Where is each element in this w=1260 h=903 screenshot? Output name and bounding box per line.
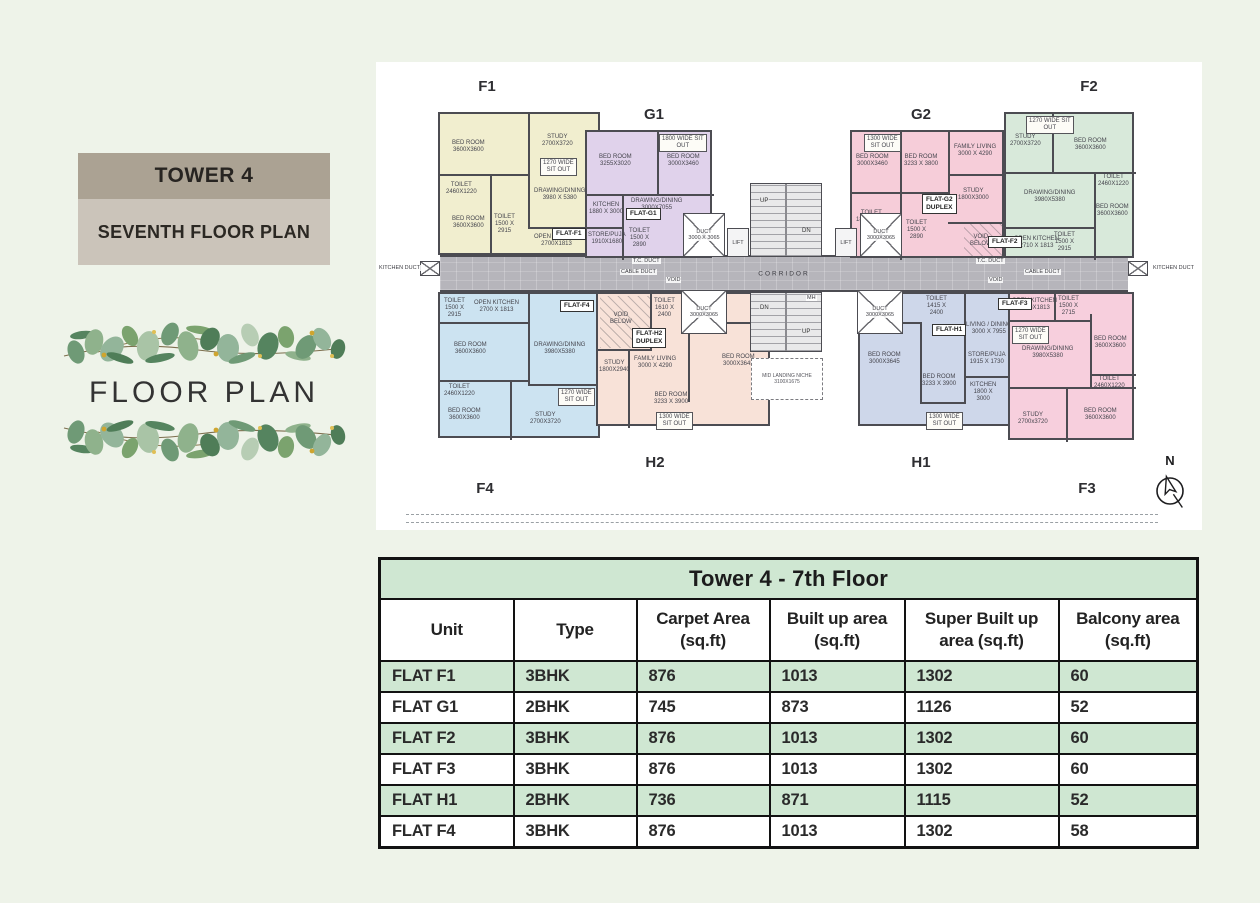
- room-label: STUDY 2700x3720: [1018, 412, 1048, 426]
- unit-label-h1: H1: [911, 454, 930, 471]
- table-cell: FLAT F1: [380, 661, 514, 692]
- room-label: BED ROOM 3600X3600: [1096, 204, 1129, 218]
- interior-wall: [440, 322, 530, 324]
- room-label: STUDY 1800X2940: [599, 360, 630, 374]
- table-cell: 3BHK: [514, 754, 637, 785]
- north-compass: N: [1148, 454, 1192, 518]
- room-label: BED ROOM 3000X3460: [667, 154, 700, 168]
- duct-shaft: [420, 261, 440, 276]
- plan-annotation: VOID: [988, 277, 1003, 283]
- floor-plan-unit-f3: OPEN KITCHEN 2700X1813TOILET 1500 X 2715…: [1008, 292, 1134, 440]
- room-label: TOILET 2460X1220: [444, 384, 475, 398]
- table-cell: 1302: [905, 723, 1059, 754]
- room-label: TOILET 1500 X 2915: [444, 298, 465, 320]
- area-table: Tower 4 - 7th Floor Unit Type Carpet Are…: [378, 557, 1199, 849]
- room-label: KITCHEN 1800 X 3000: [970, 382, 996, 404]
- unit-label-f2: F2: [1080, 78, 1098, 95]
- table-cell: FLAT F4: [380, 816, 514, 848]
- interior-wall: [528, 384, 602, 386]
- table-cell: 1302: [905, 754, 1059, 785]
- duct-shaft: [1128, 261, 1148, 276]
- stair-direction-label: UP: [801, 329, 811, 335]
- room-label: 1270 WIDE SIT OUT: [540, 158, 577, 176]
- room-label: BED ROOM 3000X3645: [722, 354, 755, 368]
- col-header-super-builtup-area: Super Built up area (sq.ft): [905, 599, 1059, 661]
- room-label: DRAWING/DINING 3980X5380: [1024, 190, 1075, 204]
- table-cell: FLAT F2: [380, 723, 514, 754]
- boundary-dashline: [406, 514, 1158, 515]
- interior-wall: [964, 294, 966, 404]
- interior-wall: [528, 294, 530, 384]
- room-label: VOID BELOW: [610, 312, 632, 326]
- plan-annotation: T.C. DUCT: [632, 258, 661, 264]
- table-cell: 876: [637, 661, 770, 692]
- interior-wall: [528, 176, 530, 227]
- plan-annotation: MH: [806, 295, 817, 301]
- duct-shaft: DUCT 3000 X 3065: [683, 213, 725, 257]
- interior-wall: [1010, 320, 1090, 322]
- floor-plan-unit-f2: STUDY 2700X3720BED ROOM 3600X3600TOILET …: [1004, 112, 1134, 258]
- table-cell: 1126: [905, 692, 1059, 723]
- table-cell: 876: [637, 816, 770, 848]
- interior-wall: [440, 380, 530, 382]
- plan-annotation: CABLE DUCT: [620, 269, 657, 275]
- room-label: BED ROOM 3600X3600: [1084, 408, 1117, 422]
- room-label: BED ROOM 3600X3600: [1094, 336, 1127, 350]
- page: TOWER 4 SEVENTH FLOOR PLAN: [0, 0, 1260, 903]
- room-label: 1300 WIDE SIT OUT: [926, 412, 963, 430]
- room-label: 1270 WIDE SIT OUT: [1026, 116, 1074, 134]
- col-header-builtup-area: Built up area (sq.ft): [770, 599, 905, 661]
- floor-plan-decor: FLOOR PLAN: [58, 322, 350, 462]
- table-cell: FLAT H1: [380, 785, 514, 816]
- room-label: 1270 WIDE SIT OUT: [558, 388, 595, 406]
- room-label: TOILET 1415 X 2400: [926, 296, 947, 318]
- room-label: STUDY 2700X3720: [1010, 134, 1041, 148]
- room-label: BED ROOM 3600X3600: [454, 342, 487, 356]
- flat-tag-h2: FLAT-H2 DUPLEX: [632, 328, 666, 348]
- table-cell: 60: [1059, 723, 1198, 754]
- table-cell: 52: [1059, 692, 1198, 723]
- room-label: 1300 WIDE SIT OUT: [864, 134, 901, 152]
- room-label: STUDY 1800X3000: [958, 188, 989, 202]
- table-cell: 1302: [905, 816, 1059, 848]
- room-label: BED ROOM 3000X3645: [868, 352, 901, 366]
- flat-tag-h1: FLAT-H1: [932, 324, 966, 336]
- unit-label-f1: F1: [478, 78, 496, 95]
- duct-shaft: DUCT 3000X3065: [857, 290, 903, 334]
- interior-wall: [1090, 314, 1092, 389]
- room-label: TOILET 1500 X 2890: [906, 220, 927, 242]
- table-row: FLAT F23BHK8761013130260: [380, 723, 1198, 754]
- room-label: TOILET 1500 X 2915: [1054, 232, 1075, 254]
- table-cell: 60: [1059, 661, 1198, 692]
- table-cell: 736: [637, 785, 770, 816]
- col-header-type: Type: [514, 599, 637, 661]
- room-label: DRAWING/DINING 3980 X 5380: [534, 188, 585, 202]
- plan-annotation: T.C. DUCT: [976, 258, 1005, 264]
- plan-annotation: CABLE DUCT: [1024, 269, 1061, 275]
- unit-label-h2: H2: [645, 454, 664, 471]
- landing-niche: MID LANDING NICHE 3100X1675: [751, 358, 823, 400]
- plan-annotation: KITCHEN DUCT: [1152, 265, 1195, 271]
- floor-plan-unit-f4: OPEN KITCHEN 2700 X 1813TOILET 1500 X 29…: [438, 292, 600, 438]
- room-label: 1300 WIDE SIT OUT: [656, 412, 693, 430]
- room-label: BED ROOM 3233 X 3900: [922, 374, 956, 388]
- table-row: FLAT H12BHK736871111552: [380, 785, 1198, 816]
- interior-wall: [688, 322, 690, 402]
- table-cell: FLAT G1: [380, 692, 514, 723]
- floor-plan-panel: N CORRIDORBED ROOM 3600X3600STUDY 2700X3…: [376, 62, 1202, 530]
- stair-direction-label: DN: [759, 305, 770, 311]
- room-label: BED ROOM 3600X3600: [448, 408, 481, 422]
- table-row: FLAT F43BHK8761013130258: [380, 816, 1198, 848]
- room-label: BED ROOM 3600X3600: [452, 140, 485, 154]
- room-label: TOILET 1500 X 2715: [1058, 296, 1079, 318]
- leaf-garland-bottom-icon: [58, 414, 350, 462]
- interior-wall: [948, 132, 950, 194]
- table-cell: 876: [637, 754, 770, 785]
- table-cell: 3BHK: [514, 816, 637, 848]
- room-label: STORE/PUJA 1910X1680: [588, 232, 626, 246]
- room-label: BED ROOM 3600X3600: [452, 216, 485, 230]
- room-label: TOILET 1500 X 2890: [629, 228, 650, 250]
- flat-tag-g1: FLAT-G1: [626, 208, 661, 220]
- table-cell: 1302: [905, 661, 1059, 692]
- table-cell: 745: [637, 692, 770, 723]
- table-cell: 873: [770, 692, 905, 723]
- table-cell: 52: [1059, 785, 1198, 816]
- room-label: STUDY 2700X3720: [530, 412, 561, 426]
- interior-wall: [490, 176, 492, 257]
- col-header-carpet-area: Carpet Area (sq.ft): [637, 599, 770, 661]
- interior-wall: [920, 402, 964, 404]
- room-label: BED ROOM 3600X3600: [1074, 138, 1107, 152]
- room-label: TOILET 2460X1220: [446, 182, 477, 196]
- plan-annotation: VOID: [666, 277, 681, 283]
- interior-wall: [1006, 227, 1094, 229]
- flat-tag-g2: FLAT-G2 DUPLEX: [922, 194, 957, 214]
- floor-subtitle: SEVENTH FLOOR PLAN: [78, 199, 330, 265]
- floor-plan-canvas: N CORRIDORBED ROOM 3600X3600STUDY 2700X3…: [376, 62, 1202, 530]
- stair-direction-label: UP: [759, 198, 769, 204]
- table-row: FLAT G12BHK745873112652: [380, 692, 1198, 723]
- table-cell: 3BHK: [514, 723, 637, 754]
- room-label: DRAWING/DINING 3980X5380: [534, 342, 585, 356]
- interior-wall: [440, 174, 530, 176]
- table-row: FLAT F33BHK8761013130260: [380, 754, 1198, 785]
- table-row: FLAT F13BHK8761013130260: [380, 661, 1198, 692]
- room-label: 1270 WIDE SIT OUT: [1012, 326, 1049, 344]
- interior-wall: [510, 382, 512, 440]
- table-cell: 1115: [905, 785, 1059, 816]
- compass-n-label: N: [1148, 454, 1192, 467]
- unit-label-g1: G1: [644, 106, 664, 123]
- lift: LIFT: [727, 228, 749, 257]
- room-label: BED ROOM 3233 X 3800: [904, 154, 938, 168]
- table-header-row: Unit Type Carpet Area (sq.ft) Built up a…: [380, 599, 1198, 661]
- flat-tag-f2: FLAT-F2: [988, 236, 1022, 248]
- table-cell: 1013: [770, 754, 905, 785]
- table-cell: 876: [637, 723, 770, 754]
- room-label: 1800 WIDE SIT OUT: [659, 134, 707, 152]
- col-header-balcony-area: Balcony area (sq.ft): [1059, 599, 1198, 661]
- plan-annotation: KITCHEN DUCT: [378, 265, 421, 271]
- table-cell: 871: [770, 785, 905, 816]
- duct-shaft: DUCT 3000X3065: [681, 290, 727, 334]
- room-label: STORE/PUJA 1915 X 1730: [968, 352, 1006, 366]
- flat-tag-f4: FLAT-F4: [560, 300, 594, 312]
- table-cell: 1013: [770, 816, 905, 848]
- room-label: LIVING / DINING 3000 X 7955: [966, 322, 1012, 336]
- room-label: TOILET 1500 X 2915: [494, 214, 515, 236]
- room-label: DRAWING/DINING 3980X5380: [1022, 346, 1073, 360]
- room-label: BED ROOM 3255X3020: [599, 154, 632, 168]
- stair-direction-label: DN: [801, 228, 812, 234]
- room-label: TOILET 2460X1220: [1098, 174, 1129, 188]
- table-cell: 2BHK: [514, 692, 637, 723]
- table-cell: 60: [1059, 754, 1198, 785]
- table-cell: 1013: [770, 723, 905, 754]
- room-label: BED ROOM 3233 X 3900: [654, 392, 688, 406]
- table-cell: 58: [1059, 816, 1198, 848]
- interior-wall: [587, 227, 624, 229]
- col-header-unit: Unit: [380, 599, 514, 661]
- room-label: BED ROOM 3000X3460: [856, 154, 889, 168]
- table-cell: 1013: [770, 661, 905, 692]
- unit-label-f4: F4: [476, 480, 494, 497]
- room-label: KITCHEN 1880 X 3000: [589, 202, 623, 216]
- unit-label-g2: G2: [911, 106, 931, 123]
- room-label: OPEN KITCHEN 2700 X 1813: [474, 300, 519, 314]
- table-title: Tower 4 - 7th Floor: [380, 559, 1198, 600]
- table-cell: 2BHK: [514, 785, 637, 816]
- interior-wall: [920, 322, 922, 404]
- boundary-dashline: [406, 522, 1158, 523]
- flat-tag-f3: FLAT-F3: [998, 298, 1032, 310]
- unit-label-f3: F3: [1078, 480, 1096, 497]
- tower-info-box: TOWER 4 SEVENTH FLOOR PLAN: [78, 153, 330, 265]
- duct-shaft: DUCT 3000X3065: [860, 213, 902, 257]
- interior-wall: [598, 349, 652, 351]
- staircase: DNUP: [750, 292, 822, 352]
- room-label: TOILET 2460X1220: [1094, 376, 1125, 390]
- room-label: FAMILY LIVING 3000 X 4290: [954, 144, 996, 158]
- area-table-wrap: Tower 4 - 7th Floor Unit Type Carpet Are…: [378, 557, 1199, 849]
- room-label: FAMILY LIVING 3000 X 4290: [634, 356, 676, 370]
- table-cell: FLAT F3: [380, 754, 514, 785]
- room-label: STUDY 2700X3720: [542, 134, 573, 148]
- interior-wall: [948, 174, 1006, 176]
- lift: LIFT: [835, 228, 857, 257]
- interior-wall: [1066, 389, 1068, 442]
- north-arrow-icon: [1148, 467, 1192, 513]
- interior-wall: [948, 222, 1006, 224]
- staircase: UPDN: [750, 183, 822, 257]
- interior-wall: [528, 114, 530, 176]
- room-label: TOILET 1610 X 2400: [654, 298, 675, 320]
- interior-wall: [587, 194, 714, 196]
- table-cell: 3BHK: [514, 661, 637, 692]
- decor-heading: FLOOR PLAN: [58, 376, 350, 410]
- leaf-garland-top-icon: [58, 322, 350, 370]
- tower-title: TOWER 4: [78, 153, 330, 199]
- flat-tag-f1: FLAT-F1: [552, 228, 586, 240]
